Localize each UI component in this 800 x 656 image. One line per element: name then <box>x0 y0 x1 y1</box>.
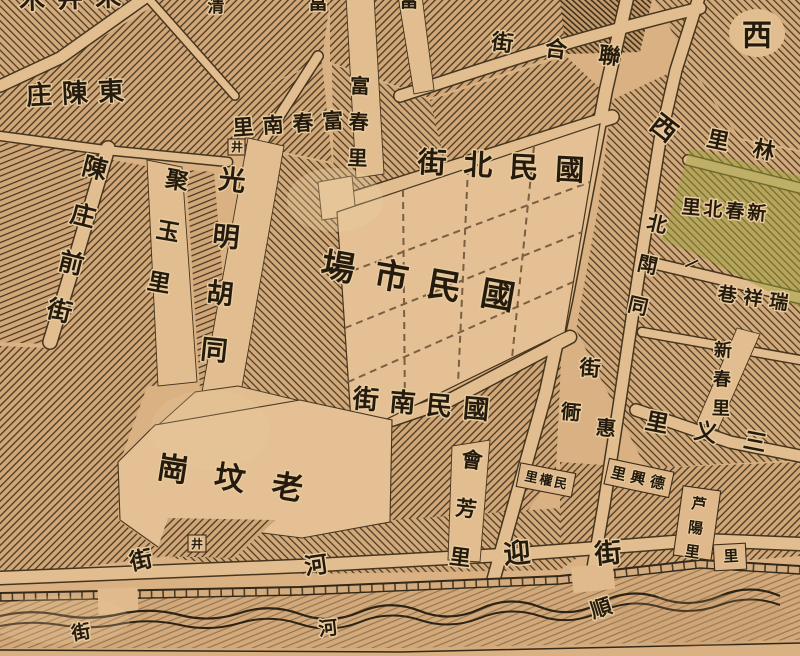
map-label-edge-top-clipped-fu-2: 富 <box>399 0 418 12</box>
map-label-dong-chen-zhuang: 庄陳東 <box>25 75 134 111</box>
map-label-he-in-band: 河 <box>317 617 338 641</box>
svg-text:里: 里 <box>684 543 701 562</box>
map-label-jie-street-char-southeast: 街 <box>592 537 623 569</box>
map-label-hui-street-char: 惠 <box>595 416 617 441</box>
svg-text:光: 光 <box>216 164 247 197</box>
svg-text:河: 河 <box>303 552 329 580</box>
historical-map-canvas: 木井朱清富富庄陳東陳庄前街聚玉里光明胡同里南春富井富春里街合聯西街北民國西里林里… <box>0 0 800 656</box>
map-label-well-1: 井 <box>231 139 243 154</box>
svg-text:清: 清 <box>208 0 225 16</box>
map-label-he-above-band: 河 <box>303 552 329 580</box>
svg-text:胡: 胡 <box>205 277 235 310</box>
svg-text:街: 街 <box>592 537 623 569</box>
svg-text:迎: 迎 <box>502 537 532 569</box>
map-label-edge-top-clipped-qing: 清 <box>208 0 225 16</box>
svg-text:街: 街 <box>577 355 601 381</box>
svg-text:會: 會 <box>460 447 485 474</box>
map-label-tong-street-char: 衕 <box>559 399 582 425</box>
svg-text:芦: 芦 <box>690 494 707 514</box>
map-label-well-2: 井 <box>191 536 203 551</box>
svg-text:富: 富 <box>308 0 328 14</box>
svg-text:河: 河 <box>317 617 338 641</box>
map-label-edge-top-clipped-fu-1: 富 <box>308 0 328 14</box>
svg-text:新: 新 <box>714 339 733 361</box>
svg-text:春: 春 <box>713 368 733 390</box>
svg-text:井: 井 <box>231 139 243 154</box>
svg-text:富: 富 <box>350 74 371 99</box>
map-label-jie-in-band: 街 <box>69 619 93 645</box>
svg-text:里: 里 <box>145 269 172 298</box>
svg-text:同: 同 <box>199 334 229 367</box>
svg-text:庄陳東: 庄陳東 <box>25 75 134 111</box>
svg-text:富: 富 <box>399 0 418 12</box>
map-label-xi-top: 西 <box>742 20 772 53</box>
map-label-jie-street-char-mid: 街 <box>577 355 601 381</box>
svg-text:玉: 玉 <box>154 217 181 246</box>
svg-text:西: 西 <box>742 20 772 53</box>
svg-text:里: 里 <box>712 398 731 419</box>
svg-text:井: 井 <box>191 536 203 551</box>
svg-text:明: 明 <box>211 221 241 254</box>
historical-map[interactable]: 木井朱清富富庄陳東陳庄前街聚玉里光明胡同里南春富井富春里街合聯西街北民國西里林里… <box>0 0 800 656</box>
map-label-li-box-edge: 里 <box>723 548 739 566</box>
svg-text:街: 街 <box>69 619 93 645</box>
map-label-ying-street-char: 迎 <box>502 537 532 569</box>
svg-text:陽: 陽 <box>687 519 704 538</box>
svg-text:衕: 衕 <box>559 399 582 425</box>
svg-text:里: 里 <box>448 544 472 570</box>
svg-text:里: 里 <box>347 147 368 171</box>
svg-text:芳: 芳 <box>454 496 478 522</box>
svg-text:里: 里 <box>723 548 739 566</box>
svg-text:惠: 惠 <box>595 416 617 441</box>
svg-text:春: 春 <box>347 110 370 135</box>
